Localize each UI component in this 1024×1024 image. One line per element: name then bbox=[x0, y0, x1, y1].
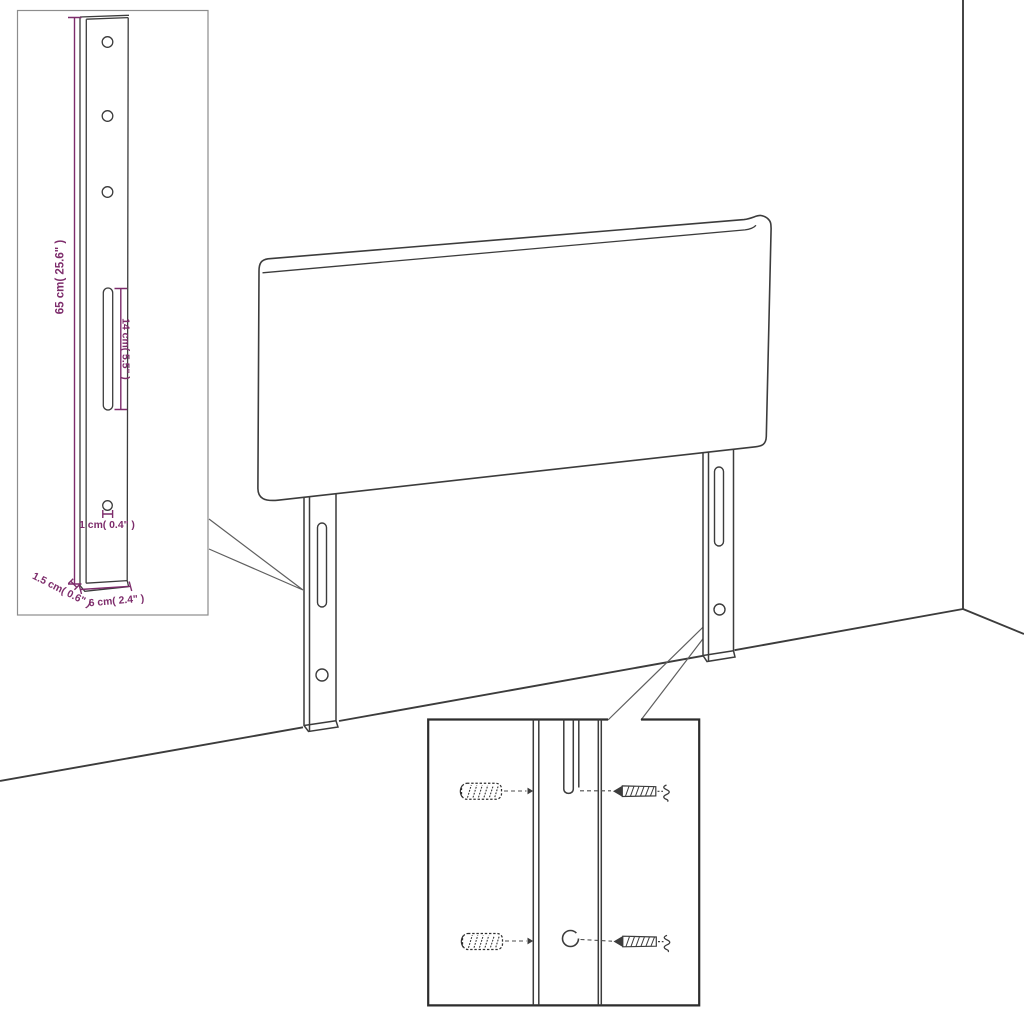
arrowhead-bottom bbox=[528, 938, 534, 945]
dimension-label-hole-diameter: 1 cm( 0.4" ) bbox=[79, 520, 135, 531]
screw-icon bbox=[614, 935, 670, 952]
leg-right-slot bbox=[715, 467, 724, 546]
leg-right-screw-hole bbox=[714, 604, 725, 615]
diagram-canvas: 65 cm( 25.6" ) 14 cm( 5.5" ) 1 cm( 0.4" … bbox=[0, 0, 1024, 1024]
product-diagram-page: 65 cm( 25.6" ) 14 cm( 5.5" ) 1 cm( 0.4" … bbox=[0, 0, 1024, 1024]
headboard-drawing bbox=[258, 215, 771, 731]
callout-lines bbox=[209, 519, 722, 720]
wall-plug-icon bbox=[460, 783, 501, 799]
inset-callout-lines bbox=[209, 519, 303, 590]
arrowhead-top bbox=[528, 788, 534, 795]
wall-plug-icon bbox=[461, 934, 502, 950]
detail-screw-hole bbox=[563, 931, 579, 947]
leg-left-slot bbox=[318, 523, 327, 607]
screw-icon bbox=[613, 785, 669, 802]
floor-line-left bbox=[0, 609, 963, 781]
detail-guides bbox=[504, 788, 612, 945]
dimension-label-slot-length: 14 cm( 5.5" ) bbox=[120, 318, 131, 380]
detail-magnifier-panel bbox=[428, 720, 699, 1006]
detail-leg-edges bbox=[533, 720, 601, 1006]
floor-line-right bbox=[963, 609, 1024, 634]
leg-left-screw-hole bbox=[316, 669, 328, 681]
inset-dimension-panel: 65 cm( 25.6" ) 14 cm( 5.5" ) 1 cm( 0.4" … bbox=[18, 11, 209, 616]
detail-slot bbox=[564, 720, 574, 794]
dimension-label-height: 65 cm( 25.6" ) bbox=[55, 240, 67, 315]
detail-leg-strip bbox=[533, 720, 601, 1006]
guide-screw-bottom bbox=[581, 940, 613, 942]
headboard-panel bbox=[258, 215, 771, 500]
